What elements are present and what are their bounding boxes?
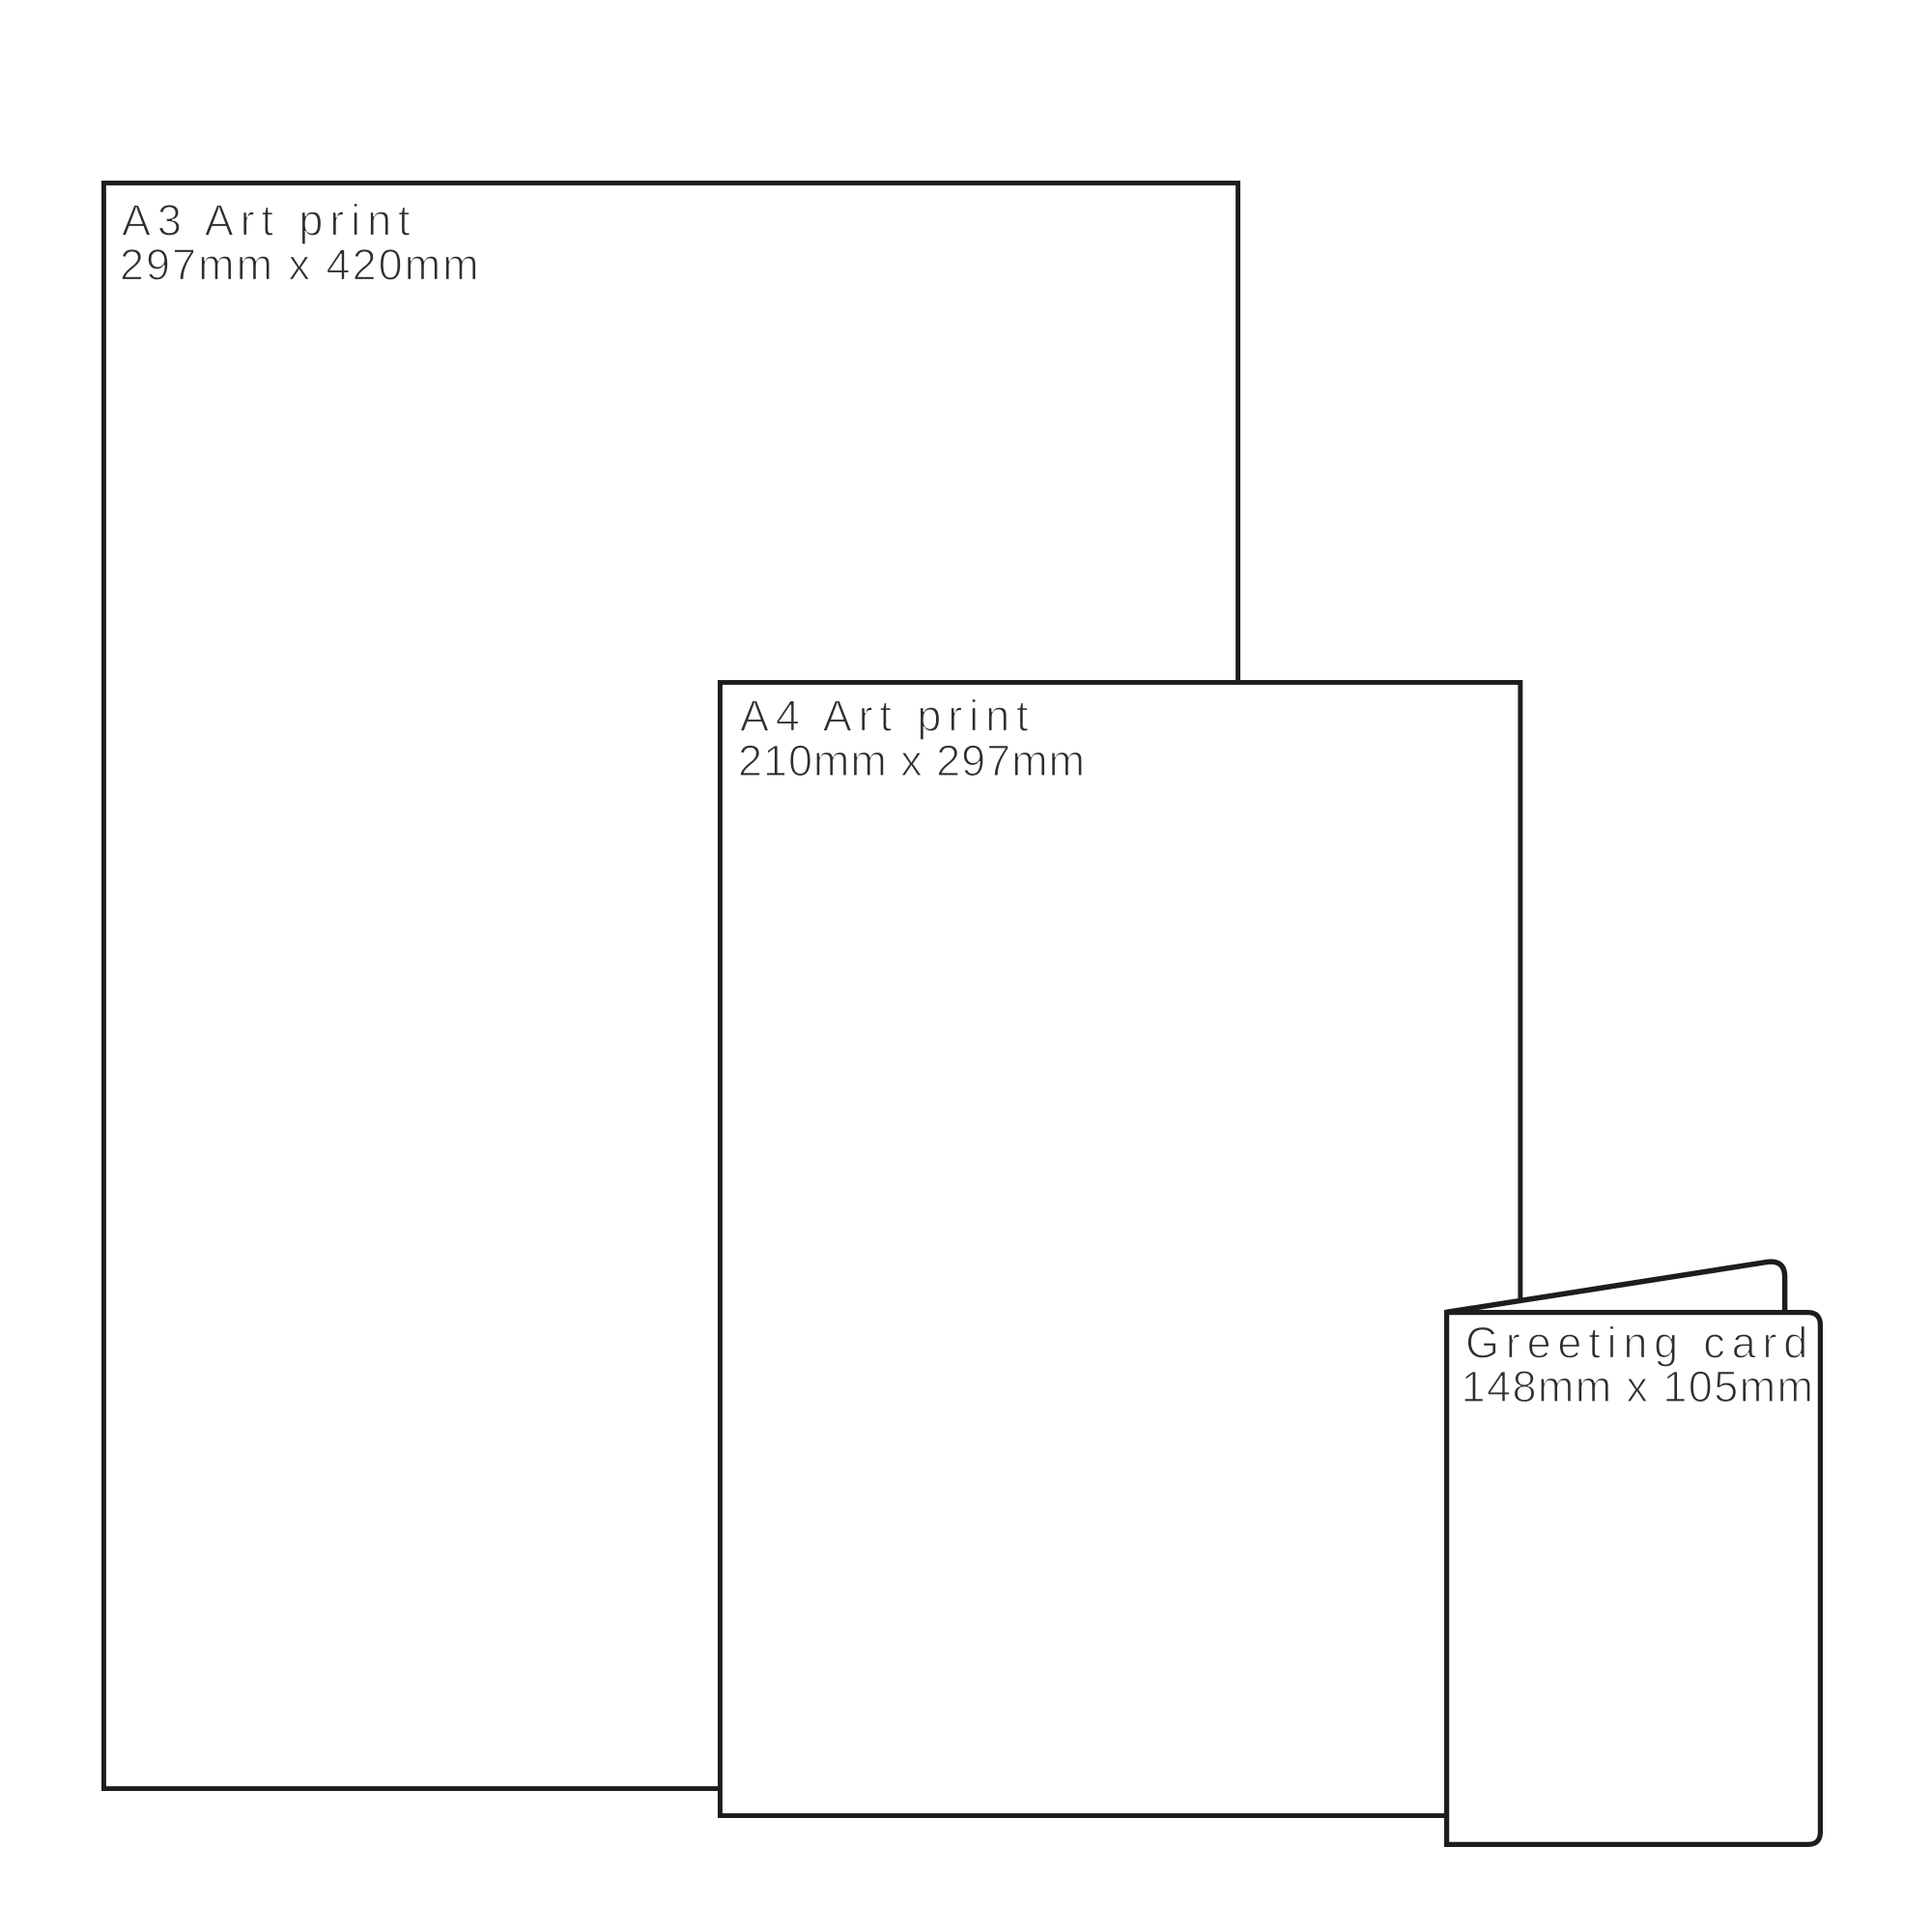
- svg-text:148mm x 105mm: 148mm x 105mm: [1462, 1362, 1815, 1411]
- svg-text:210mm x 297mm: 210mm x 297mm: [738, 736, 1086, 785]
- svg-text:297mm x 420mm: 297mm x 420mm: [120, 240, 481, 289]
- svg-text:A4 Art print: A4 Art print: [740, 691, 1035, 740]
- svg-text:Greeting card: Greeting card: [1465, 1319, 1814, 1368]
- svg-text:A3 Art print: A3 Art print: [122, 196, 416, 245]
